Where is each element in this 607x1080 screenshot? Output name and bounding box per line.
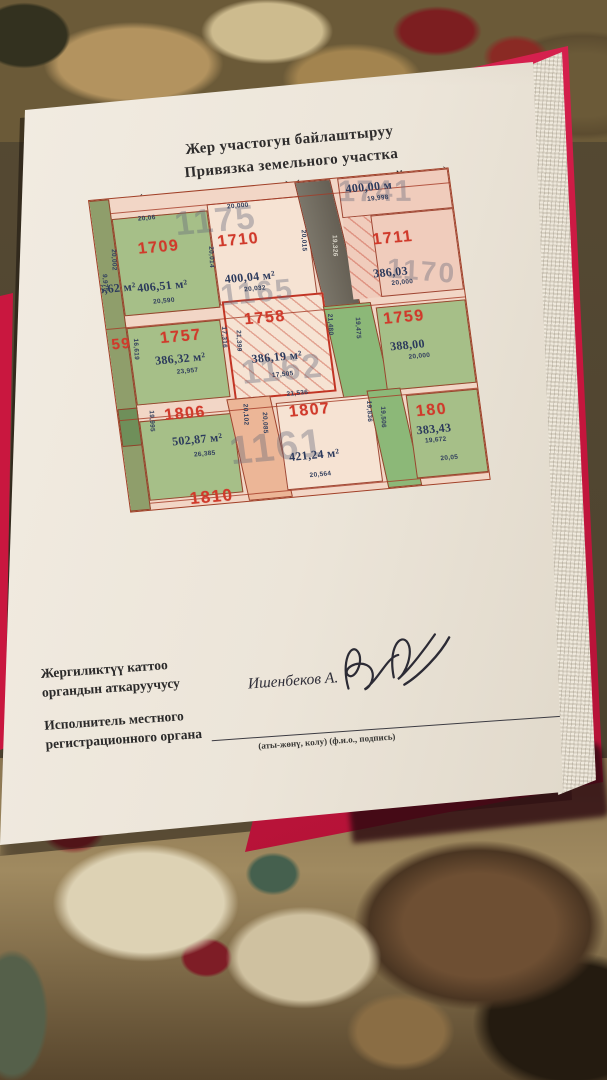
- dim-label: 26,385: [194, 450, 217, 459]
- parcel-1808-shape: [406, 389, 489, 479]
- signature-line: [212, 715, 567, 741]
- photo-of-document: Жер участогун байлаштыруу Привязка земел…: [0, 0, 607, 1080]
- partial-area-label: 6,62 м²: [97, 279, 137, 297]
- dim-label: 9,975: [101, 274, 109, 292]
- faint-block-number: 1741: [337, 175, 414, 209]
- dim-label: 19,672: [425, 436, 448, 445]
- parcel-number: 1711: [371, 228, 414, 250]
- dim-label: 20,102: [241, 404, 249, 426]
- dim-label: 20,564: [309, 470, 332, 479]
- dim-label: 19,326: [331, 235, 339, 257]
- parcel-area: 388,00: [389, 336, 426, 354]
- map-gridline: [106, 296, 465, 330]
- parcel-number: 1806: [163, 403, 207, 425]
- footer-signature-block: Жергиликтүү каттоо органдын аткаруучусу …: [40, 627, 577, 784]
- handwritten-signature: [330, 623, 465, 706]
- dim-label: 20,085: [261, 412, 269, 434]
- parcel-area: 421,24 м²: [288, 445, 340, 464]
- dim-label: 19,998: [367, 194, 390, 203]
- signer-name: Ишенбеков А.: [247, 669, 339, 693]
- faint-block-number: 1165: [219, 273, 296, 313]
- dim-label: 23,957: [176, 367, 199, 376]
- dim-label: 17,316: [220, 326, 228, 348]
- map-gridline: [111, 182, 450, 214]
- partial-parcel-number: 1810: [189, 485, 235, 509]
- dim-label: 20,032: [244, 284, 267, 293]
- signature-caption: (аты-жөнү, колу) (ф.и.о., подпись): [258, 731, 396, 751]
- dim-label: 20,05: [440, 454, 459, 463]
- executor-label-kyrgyz: Жергиликтүү каттоо органдын аткаруучусу: [40, 654, 180, 702]
- dim-label: 20,000: [227, 202, 250, 211]
- salmon-strip: [226, 395, 293, 500]
- executor-ru-line1: Исполнитель местного: [44, 708, 184, 733]
- executor-ru-line2: регистрационного органа: [45, 726, 202, 752]
- sheet-content: Жер участогун байлаштыруу Привязка земел…: [30, 59, 605, 842]
- parcel-number: 1710: [217, 230, 261, 252]
- map-spacer: [41, 175, 588, 649]
- dim-label: 17,505: [272, 370, 295, 379]
- parcel-area: 406,51 м²: [136, 277, 188, 296]
- title-line-1: Жер участогун байлаштыруу: [34, 107, 544, 176]
- dim-label: 20,590: [153, 297, 176, 306]
- executor-label-russian: Исполнитель местного регистрационного ор…: [44, 705, 203, 754]
- title-line-3: (кырдаалдык планы) (ситуационный план): [39, 152, 549, 221]
- dim-label: 21,399: [235, 330, 243, 352]
- faint-block-number: 1175: [172, 198, 259, 244]
- dim-label: 16,619: [132, 338, 140, 360]
- hatch-region-ne: [342, 216, 381, 300]
- green-strip-a: [323, 302, 392, 403]
- parcel-1758-shape: [222, 292, 337, 400]
- dim-label: 20,014: [207, 246, 215, 268]
- parcel-number: 1759: [382, 307, 426, 329]
- parcel-area: 386,32 м²: [154, 349, 206, 368]
- faint-block-number: 1161: [227, 421, 327, 474]
- dim-label: 21,536: [286, 389, 309, 398]
- parcel-1709-shape: [112, 210, 221, 316]
- parcel-1757-shape: [126, 320, 230, 406]
- parcel-1759-shape: [376, 299, 477, 390]
- green-strip-b: [366, 388, 422, 488]
- executor-ky-line2: органдын аткаруучусу: [41, 675, 180, 700]
- corner-parcel-shape: [337, 168, 453, 218]
- title-line-2: Привязка земельного участка: [36, 129, 546, 198]
- map-left-green-square: [117, 408, 142, 448]
- map-gridline: [150, 472, 489, 504]
- partial-parcel-number: 59: [110, 335, 132, 354]
- faint-block-number: 1170: [386, 252, 456, 289]
- dim-label: 20,000: [408, 352, 431, 361]
- parcel-number: 1807: [288, 400, 332, 422]
- executor-ky-line1: Жергиликтүү каттоо: [40, 657, 168, 681]
- dim-label: 19,836: [365, 401, 373, 423]
- parcel-area: 386,03: [372, 263, 409, 281]
- parcel-number: 180: [415, 401, 448, 422]
- dim-label: 20,015: [300, 230, 308, 252]
- faint-block-number: 1162: [239, 347, 326, 393]
- parcel-1710-shape: [207, 196, 318, 306]
- parcel-area: 400,04 м²: [224, 268, 276, 287]
- map-gridline: [119, 388, 478, 422]
- map-left-strip: [89, 199, 151, 511]
- dim-label: 20,000: [391, 278, 414, 287]
- parcel-number: 1709: [137, 237, 181, 259]
- parcel-1806-shape: [139, 413, 243, 501]
- parcel-1711-shape: [370, 208, 464, 297]
- parcel-area: 502,87 м²: [171, 430, 223, 449]
- cadastral-map: 1175 1741 1165 1162 1170 1161 1709 406,5…: [88, 167, 491, 512]
- parcel-number: 1757: [159, 326, 203, 348]
- parcel-area: 400,00 м: [345, 178, 393, 197]
- dim-label: 19,506: [379, 406, 387, 428]
- parcel-1807-shape: [276, 394, 383, 490]
- parcel-area: 386,19 м²: [251, 347, 303, 366]
- document-title: Жер участогун байлаштыруу Привязка земел…: [34, 107, 548, 222]
- dim-label: 20,06: [137, 214, 156, 223]
- parcel-number: 1758: [243, 308, 287, 330]
- dim-label: 19,995: [148, 410, 156, 432]
- parcel-area: 383,43: [416, 420, 453, 438]
- dim-label: 19,475: [354, 317, 362, 339]
- dim-label: 20,002: [110, 249, 118, 271]
- road-strip: [294, 179, 362, 314]
- dim-label: 21,480: [326, 314, 334, 336]
